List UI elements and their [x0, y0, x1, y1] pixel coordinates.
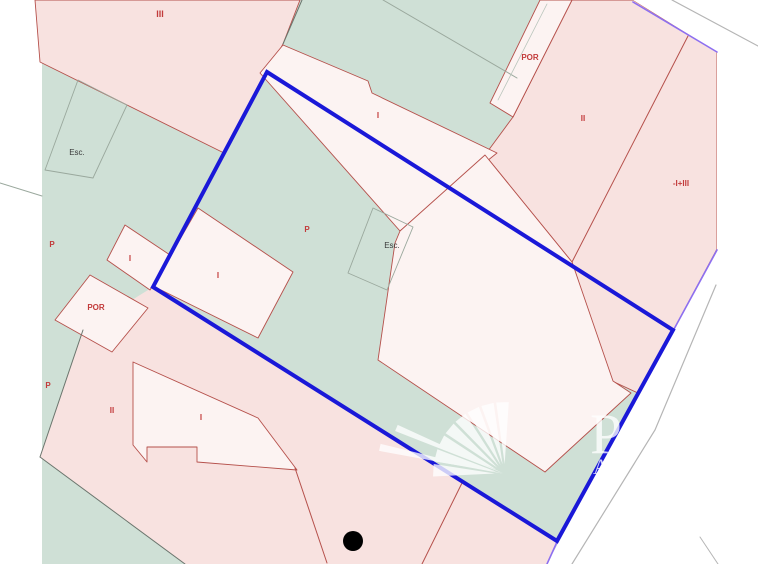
parcel-label: I: [200, 413, 202, 422]
parcel-label: P: [49, 240, 55, 249]
parcel-label: Esc.: [69, 148, 85, 157]
parcel-label: I: [377, 111, 379, 120]
parcel-label: I: [129, 254, 131, 263]
parcel-label: P: [45, 381, 51, 390]
parcel-label: II: [110, 406, 114, 415]
cadastral-map-viewport: PAIIIPORIII-I+IIIEsc.PEsc.PIPORIPIII: [0, 0, 758, 564]
parcel-label: Esc.: [384, 241, 400, 250]
parcel-label: POR: [521, 53, 539, 62]
parcel-label: POR: [87, 303, 105, 312]
point-marker: [343, 531, 363, 551]
parcel-label: -I+III: [673, 179, 689, 188]
cadastral-map[interactable]: PAIIIPORIII-I+IIIEsc.PEsc.PIPORIPIII: [0, 0, 758, 564]
parcel-label: P: [304, 225, 310, 234]
parcel-label: II: [581, 114, 585, 123]
watermark-letter: A: [593, 454, 609, 479]
parcel-label: III: [156, 9, 164, 19]
parcel-label: I: [217, 271, 219, 280]
